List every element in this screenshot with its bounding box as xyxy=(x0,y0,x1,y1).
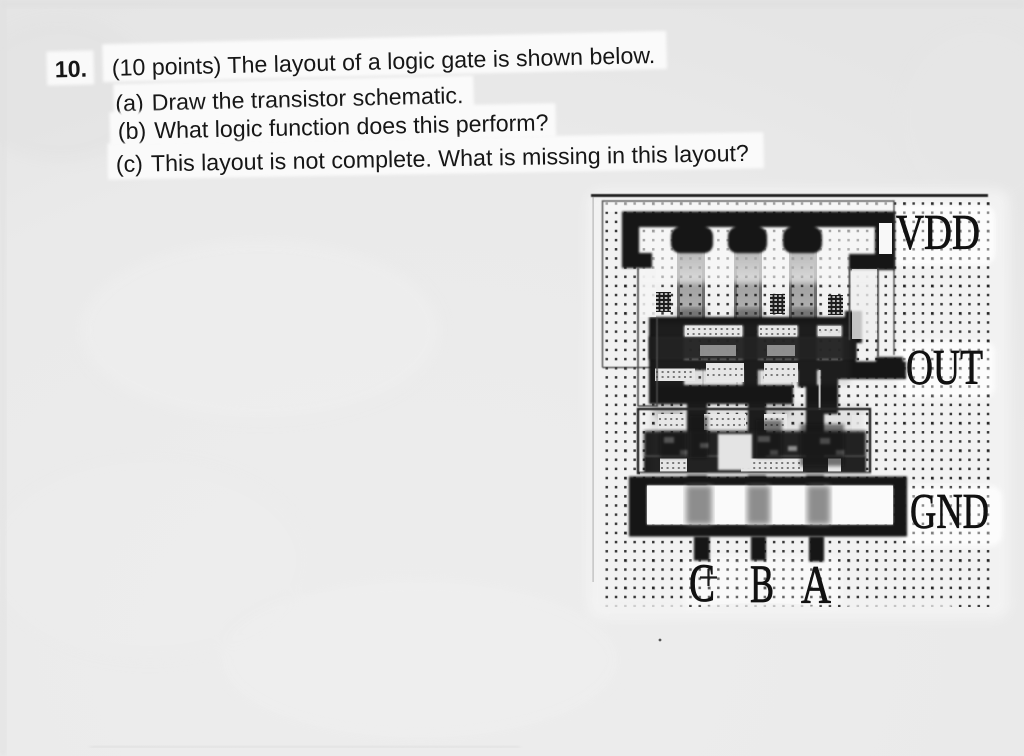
svg-text:C: C xyxy=(689,553,715,613)
svg-text:GND: GND xyxy=(910,483,989,539)
svg-text:10.: 10. xyxy=(55,56,88,83)
svg-text:VDD: VDD xyxy=(896,204,980,260)
svg-text:OUT: OUT xyxy=(906,339,983,395)
